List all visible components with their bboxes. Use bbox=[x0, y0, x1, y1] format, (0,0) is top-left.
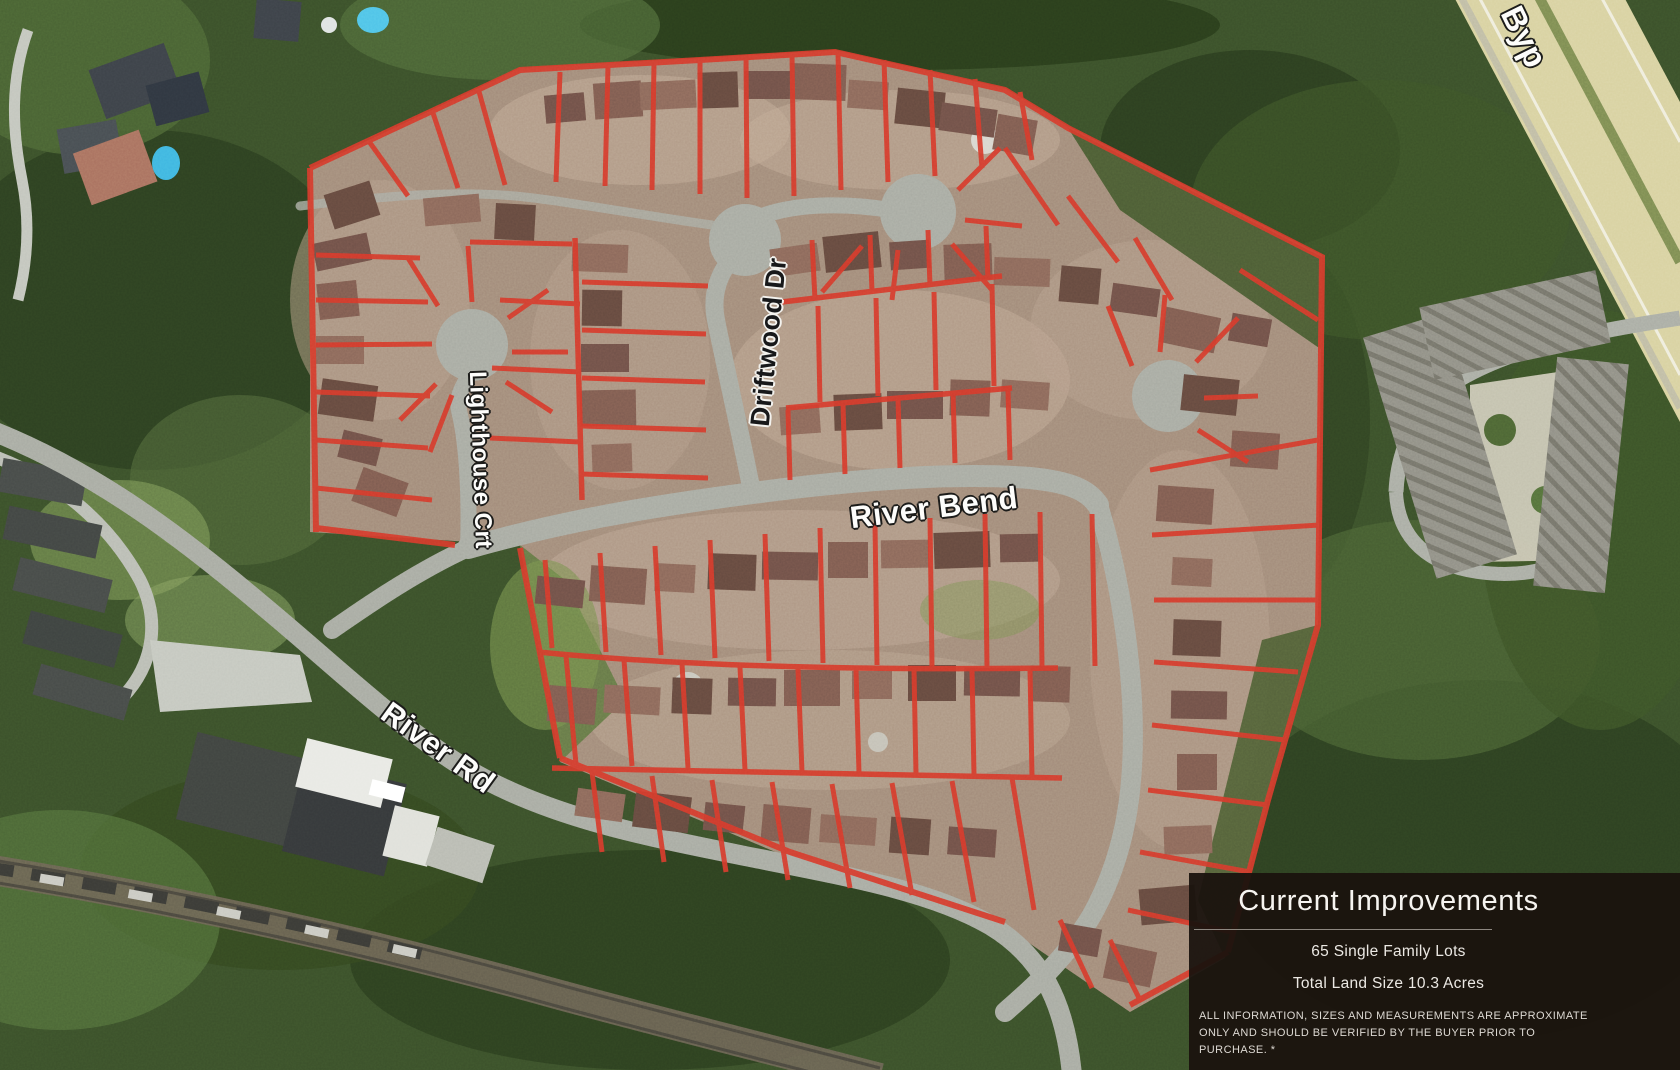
panel-divider bbox=[1194, 929, 1492, 930]
panel-facts: 65 Single Family Lots Total Land Size 10… bbox=[1189, 943, 1588, 993]
fact-land-size: Total Land Size 10.3 Acres bbox=[1189, 975, 1588, 993]
listing-map-graphic: Driftwood Dr Lighthouse Crt River Bend R… bbox=[0, 0, 1680, 1070]
panel-disclaimer: ALL INFORMATION, SIZES AND MEASUREMENTS … bbox=[1199, 1008, 1592, 1059]
fact-lot-count: 65 Single Family Lots bbox=[1189, 943, 1588, 961]
info-panel: Current Improvements 65 Single Family Lo… bbox=[1189, 873, 1680, 1070]
panel-title: Current Improvements bbox=[1189, 885, 1588, 918]
